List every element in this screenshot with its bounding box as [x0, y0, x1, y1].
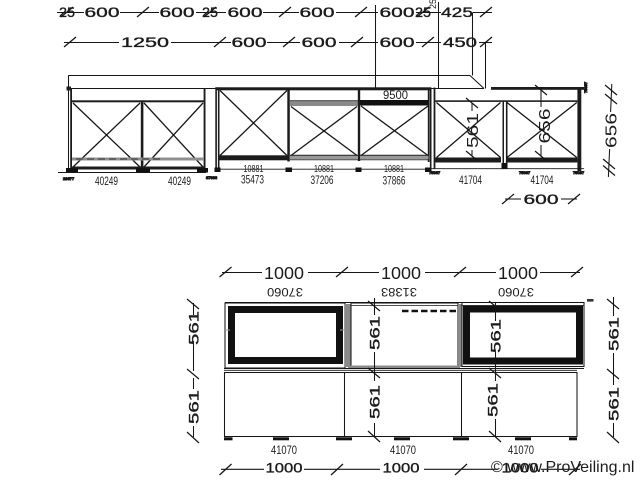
svg-text:75067: 75067: [519, 170, 531, 175]
svg-text:41070: 41070: [271, 445, 297, 457]
svg-text:600: 600: [302, 34, 337, 50]
svg-text:425: 425: [441, 4, 473, 20]
svg-text:25: 25: [428, 0, 438, 9]
svg-text:1000: 1000: [383, 460, 420, 476]
svg-text:25: 25: [59, 4, 75, 20]
svg-text:600: 600: [232, 34, 267, 50]
svg-text:41704: 41704: [531, 175, 554, 187]
svg-text:561: 561: [485, 383, 501, 417]
svg-text:10881: 10881: [314, 164, 334, 175]
svg-text:1000: 1000: [498, 263, 538, 283]
svg-text:561: 561: [367, 316, 383, 350]
svg-text:37060: 37060: [267, 285, 303, 297]
svg-text:561: 561: [186, 390, 202, 424]
svg-text:10881: 10881: [244, 164, 264, 175]
svg-text:© www.ProVeiling.nl: © www.ProVeiling.nl: [491, 459, 634, 476]
svg-text:561: 561: [367, 385, 383, 419]
svg-text:41070: 41070: [390, 445, 416, 457]
svg-text:10881: 10881: [384, 164, 404, 175]
svg-text:600: 600: [300, 4, 335, 20]
svg-text:1000: 1000: [264, 263, 304, 283]
svg-text:40249: 40249: [95, 176, 118, 188]
svg-text:1250: 1250: [121, 34, 169, 50]
svg-text:40249: 40249: [168, 176, 191, 188]
svg-text:600: 600: [380, 34, 415, 50]
svg-text:600: 600: [380, 4, 415, 20]
svg-text:656: 656: [604, 113, 621, 148]
svg-text:561: 561: [488, 319, 504, 353]
svg-text:37866: 37866: [206, 175, 218, 180]
svg-text:450: 450: [443, 34, 477, 50]
svg-text:1000: 1000: [381, 263, 421, 283]
svg-text:25: 25: [202, 4, 218, 20]
svg-text:600: 600: [228, 4, 263, 20]
svg-text:1000: 1000: [266, 460, 303, 476]
svg-text:600: 600: [85, 4, 120, 20]
svg-text:31383: 31383: [381, 285, 417, 297]
svg-text:41070: 41070: [508, 445, 534, 457]
svg-text:23677: 23677: [63, 176, 75, 181]
svg-text:600: 600: [524, 191, 559, 207]
svg-text:600: 600: [160, 4, 195, 20]
svg-text:561: 561: [465, 113, 482, 148]
svg-text:561: 561: [606, 387, 622, 421]
svg-text:37060: 37060: [498, 285, 534, 297]
svg-text:37866: 37866: [383, 176, 406, 188]
svg-text:35473: 35473: [241, 175, 264, 187]
svg-text:561: 561: [606, 317, 622, 351]
svg-text:41704: 41704: [459, 175, 482, 187]
svg-text:37206: 37206: [311, 175, 334, 187]
svg-text:656: 656: [537, 109, 554, 144]
svg-text:75067: 75067: [573, 170, 585, 175]
svg-text:561: 561: [186, 311, 202, 345]
svg-text:75067: 75067: [583, 81, 588, 93]
svg-text:75067: 75067: [429, 170, 441, 175]
